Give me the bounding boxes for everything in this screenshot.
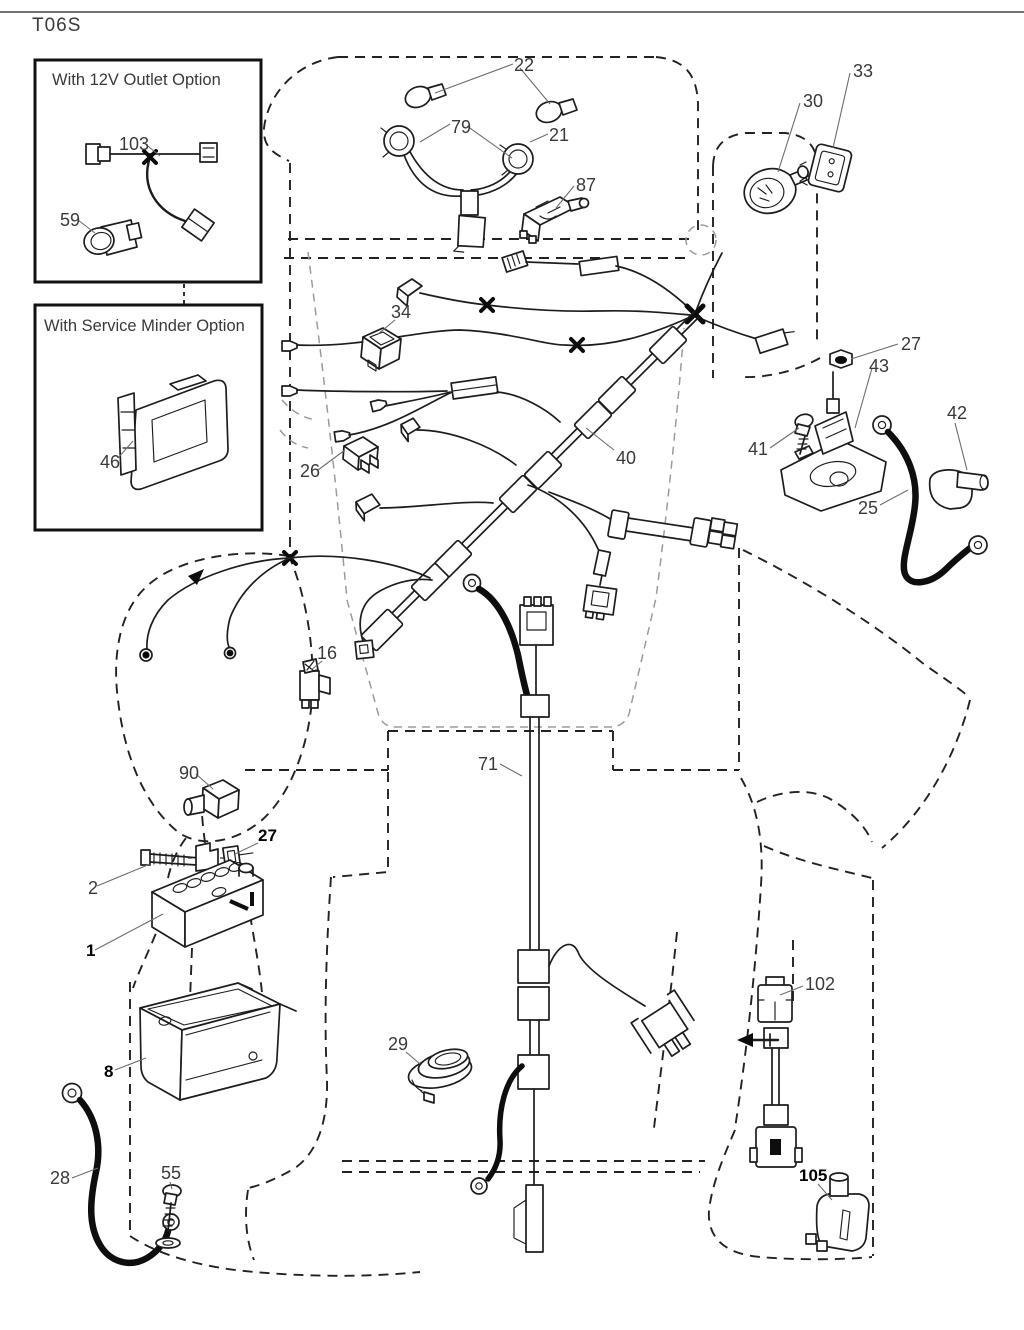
- connector-block: [629, 990, 704, 1065]
- part-label-25: 25: [858, 498, 878, 518]
- part-label-30: 30: [803, 91, 823, 111]
- part-34-switch: [361, 328, 401, 371]
- part-102-extension: [737, 977, 802, 1167]
- part-label-103: 103: [119, 134, 149, 154]
- part-label-22: 22: [514, 55, 534, 75]
- part-label-21: 21: [549, 125, 569, 145]
- part-label-27b: 27: [258, 826, 277, 845]
- part-label-28: 28: [50, 1168, 70, 1188]
- ground-lead-upper: [464, 575, 528, 696]
- part-label-doc-code: T06S: [32, 15, 81, 36]
- part-label-71: 71: [478, 754, 498, 774]
- part-label-26: 26: [300, 461, 320, 481]
- part-33-module: [799, 141, 852, 193]
- parts-diagram-page: T06SWith 12V Outlet Option10359With Serv…: [0, 0, 1024, 1330]
- part-87-connector: [520, 197, 589, 243]
- part-label-79: 79: [451, 117, 471, 137]
- direction-arrow: [188, 569, 204, 585]
- part-label-59: 59: [60, 210, 80, 230]
- part-label-1: 1: [86, 941, 95, 960]
- part-label-40: 40: [616, 448, 636, 468]
- part-label-41: 41: [748, 439, 768, 459]
- part-label-105: 105: [799, 1166, 827, 1185]
- seat-harness-wires: [140, 556, 432, 661]
- part-42-terminal-boot: [930, 470, 988, 509]
- harness-wires: [282, 251, 797, 564]
- part-label-29: 29: [388, 1034, 408, 1054]
- part-label-90: 90: [179, 763, 199, 783]
- part-label-inset-12v-title: With 12V Outlet Option: [52, 71, 221, 89]
- part-29-grommet: [406, 1046, 475, 1103]
- part-label-42: 42: [947, 403, 967, 423]
- part-label-2: 2: [88, 878, 98, 898]
- part-22-headlight-bulbs: [402, 83, 577, 126]
- part-21-headlight-harness: [404, 150, 518, 257]
- part-label-43: 43: [869, 356, 889, 376]
- part-30-ignition-switch: [739, 162, 810, 219]
- inset-service-minder-option: [35, 305, 262, 530]
- part-label-8: 8: [104, 1062, 113, 1081]
- part-59-12v-outlet: [82, 220, 142, 257]
- part-8-battery-box: [140, 983, 296, 1100]
- part-label-46: 46: [100, 452, 120, 472]
- parts-diagram: T06SWith 12V Outlet Option10359With Serv…: [0, 0, 1024, 1330]
- part-label-33: 33: [853, 61, 873, 81]
- part-label-inset-sm-title: With Service Minder Option: [44, 317, 245, 335]
- headlight-plug: [452, 212, 489, 256]
- part-90-sensor: [184, 780, 239, 818]
- fuse-holder: [549, 492, 738, 549]
- part-label-87: 87: [576, 175, 596, 195]
- part-label-34: 34: [391, 302, 411, 322]
- part-label-16: 16: [317, 643, 337, 663]
- part-label-55: 55: [161, 1163, 181, 1183]
- chassis-dashed-outlines: [116, 57, 970, 1276]
- part-27a-nut: [830, 350, 852, 368]
- inset-12v-outlet-option: [35, 60, 261, 282]
- part-71-harness: [471, 597, 645, 1252]
- part-46-service-minder: [118, 375, 228, 489]
- part-43-solenoid: [781, 372, 886, 511]
- part-26-relay: [343, 437, 378, 473]
- part-label-102: 102: [805, 974, 835, 994]
- part-label-27a: 27: [901, 334, 921, 354]
